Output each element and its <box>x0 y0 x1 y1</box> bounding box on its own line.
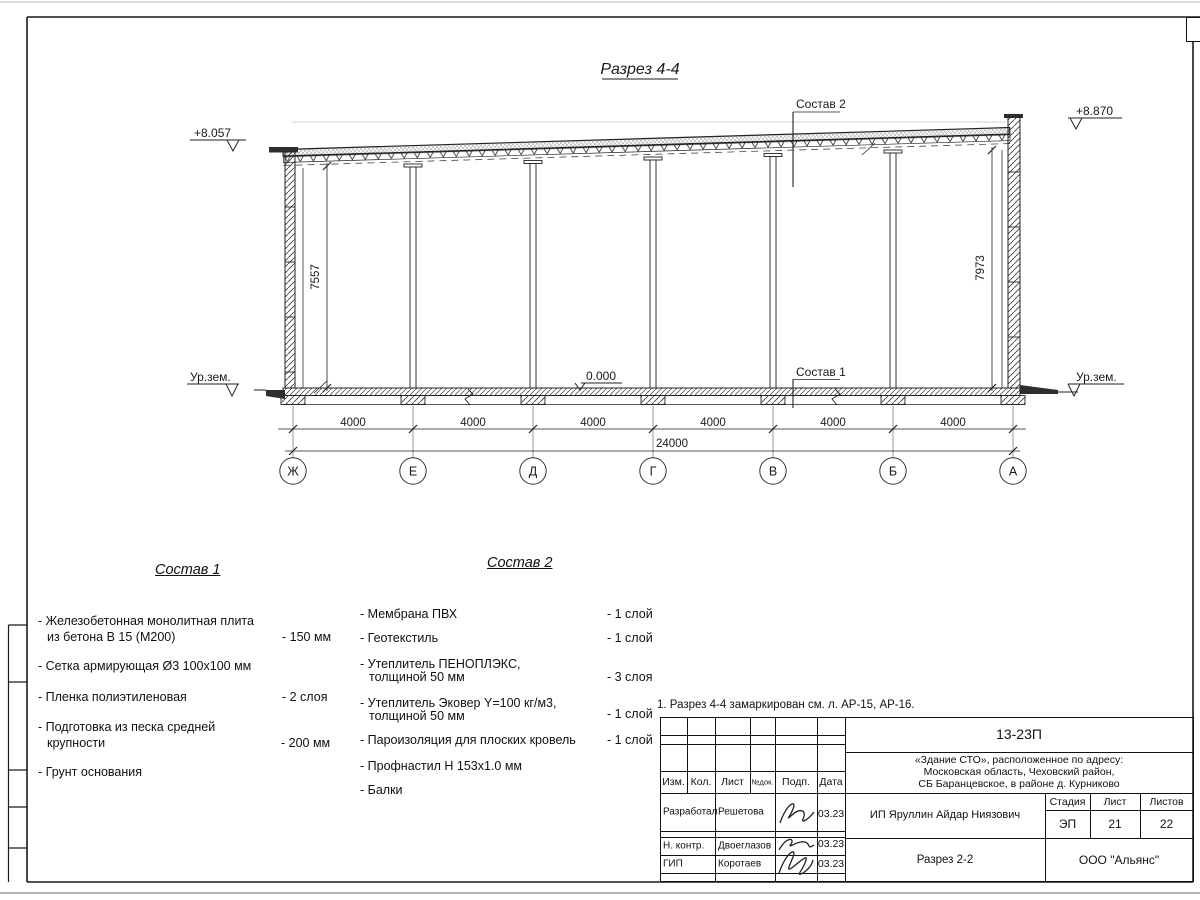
comp2-item3-line1: - Утеплитель ПЕНОПЛЭКС, <box>360 658 520 671</box>
pointer-ticks <box>314 143 875 393</box>
elev-left-label: +8.057 <box>194 126 231 140</box>
comp1-item1-value: - 150 мм <box>282 631 331 644</box>
tb-date-developer: 03.23 <box>818 808 844 820</box>
axis-label-b: Б <box>889 465 897 479</box>
dim-24000: 24000 <box>656 438 688 450</box>
vertical-dim-right <box>988 146 996 392</box>
axis-label-a: А <box>1009 465 1018 479</box>
comp1-item3-line1: - Пленка полиэтиленовая <box>38 691 187 704</box>
tb-name-ncontrol: Двоеглазов <box>718 841 771 852</box>
axis-label-zh: Ж <box>287 465 299 479</box>
dim-7973: 7973 <box>975 255 987 281</box>
tb-col-list: Лист <box>721 776 744 788</box>
comp2-item7-line1: - Балки <box>360 784 403 797</box>
comp2-item5-value: - 1 слой <box>607 734 653 747</box>
dim-4000-2: 4000 <box>460 417 486 429</box>
comp2-title: Состав 2 <box>487 555 552 571</box>
left-margin-cells <box>9 625 28 882</box>
elev-right-label: +8.870 <box>1076 104 1113 118</box>
drawing-note: 1. Разрез 4-4 замаркирован см. л. АР-15,… <box>657 699 915 711</box>
tb-project-line2: Московская область, Чеховский район, <box>924 766 1115 778</box>
tb-col-kol: Кол. <box>691 776 712 788</box>
comp2-item1-line1: - Мембрана ПВХ <box>360 608 457 621</box>
tb-client: ИП Яруллин Айдар Ниязович <box>870 809 1020 821</box>
signature-gip <box>775 845 817 879</box>
wall-left <box>285 152 303 388</box>
tb-name-developer: Решетова <box>718 807 764 818</box>
tb-name-gip: Коротаев <box>718 859 761 870</box>
comp1-item5-line1: - Грунт основания <box>38 766 142 779</box>
dim-4000-6: 4000 <box>940 417 966 429</box>
foundations <box>281 396 1025 405</box>
comp2-item2-line1: - Геотекстиль <box>360 632 438 645</box>
tb-col-ndok: №док. <box>752 778 774 787</box>
comp1-item4-line1: - Подготовка из песка средней <box>38 721 215 734</box>
extension-lines <box>293 406 1013 458</box>
comp1-item4-value: - 200 мм <box>281 737 330 750</box>
title-block: Изм. Кол. Лист №док. Подп. Дата Разработ… <box>660 717 1194 882</box>
tb-role-developer: Разработал <box>663 807 717 818</box>
comp1-callout-label: Состав 1 <box>796 365 846 379</box>
comp2-callout-label: Состав 2 <box>796 97 846 111</box>
axis-label-d: Д <box>529 465 538 479</box>
tb-role-ncontrol: Н. контр. <box>663 841 704 852</box>
dim-4000-4: 4000 <box>700 417 726 429</box>
comp2-item3-line2: толщиной 50 мм <box>369 671 465 684</box>
wall-right <box>1002 117 1020 388</box>
comp2-item4-value: - 1 слой <box>607 708 653 721</box>
comp2-item5-line1: - Пароизоляция для плоских кровель <box>360 734 576 747</box>
axis-label-v: В <box>769 465 777 479</box>
axis-label-e: Е <box>409 465 417 479</box>
tb-stage-label: Стадия <box>1050 796 1086 808</box>
tb-col-data: Дата <box>819 776 842 788</box>
axis-label-g: Г <box>650 465 657 479</box>
comp2-item2-value: - 1 слой <box>607 632 653 645</box>
comp2-item6-line1: - Профнастил Н 153х1.0 мм <box>360 760 522 773</box>
tb-sheets-value: 22 <box>1160 817 1173 831</box>
dim-4000-1: 4000 <box>340 417 366 429</box>
signature-developer <box>777 795 817 831</box>
columns <box>404 150 902 388</box>
ground-right-label: Ур.зем. <box>1076 370 1117 384</box>
comp1-item1-line1: - Железобетонная монолитная плита <box>38 615 254 628</box>
comp1-title: Состав 1 <box>155 562 220 578</box>
dim-4000-5: 4000 <box>820 417 846 429</box>
tb-project-line1: «Здание СТО», расположенное по адресу: <box>915 754 1123 766</box>
drawing-sheet: Разрез 4-4 +8.057 +8.870 Ур.зем. Ур.зем.… <box>0 0 1200 900</box>
tb-date-gip: 03.23 <box>818 858 844 870</box>
comp2-item1-value: - 1 слой <box>607 608 653 621</box>
ground-left-label: Ур.зем. <box>190 370 231 384</box>
dim-line-segments <box>278 425 1026 433</box>
vertical-dim-left <box>323 162 331 392</box>
comp1-item2-line1: - Сетка армирующая Ø3 100х100 мм <box>38 660 251 673</box>
zero-level-label: 0.000 <box>586 369 616 383</box>
tb-stage-value: ЭП <box>1059 817 1076 831</box>
comp1-item4-line2: крупности <box>47 737 105 750</box>
comp2-item4-line2: толщиной 50 мм <box>369 710 465 723</box>
tb-role-gip: ГИП <box>663 859 683 870</box>
tb-doc-number: 13-23П <box>996 726 1042 742</box>
tb-sheets-label: Листов <box>1149 796 1183 808</box>
tb-col-izm: Изм. <box>662 776 685 788</box>
comp2-item4-line1: - Утеплитель Эковер Y=100 кг/м3, <box>360 697 556 710</box>
comp1-item3-value: - 2 слоя <box>282 691 327 704</box>
comp1-item1-line2: из бетона В 15 (М200) <box>47 631 175 644</box>
dim-4000-3: 4000 <box>580 417 606 429</box>
tb-sheet-title: Разрез 2-2 <box>917 854 973 866</box>
tb-date-ncontrol: 03.23 <box>818 838 844 850</box>
sheet-title: Разрез 4-4 <box>600 61 679 78</box>
dim-line-total <box>285 447 1020 455</box>
tb-project-line3: СБ Баранцевское, в районе д. Курниково <box>918 778 1119 790</box>
dim-7557: 7557 <box>310 264 322 290</box>
tb-company: ООО "Альянс" <box>1079 853 1159 867</box>
tb-sheet-label: Лист <box>1104 796 1127 808</box>
comp2-item3-value: - 3 слоя <box>607 671 652 684</box>
tb-col-podp: Подп. <box>782 776 810 788</box>
corner-stamp-box <box>1186 17 1200 42</box>
tb-sheet-value: 21 <box>1108 817 1121 831</box>
